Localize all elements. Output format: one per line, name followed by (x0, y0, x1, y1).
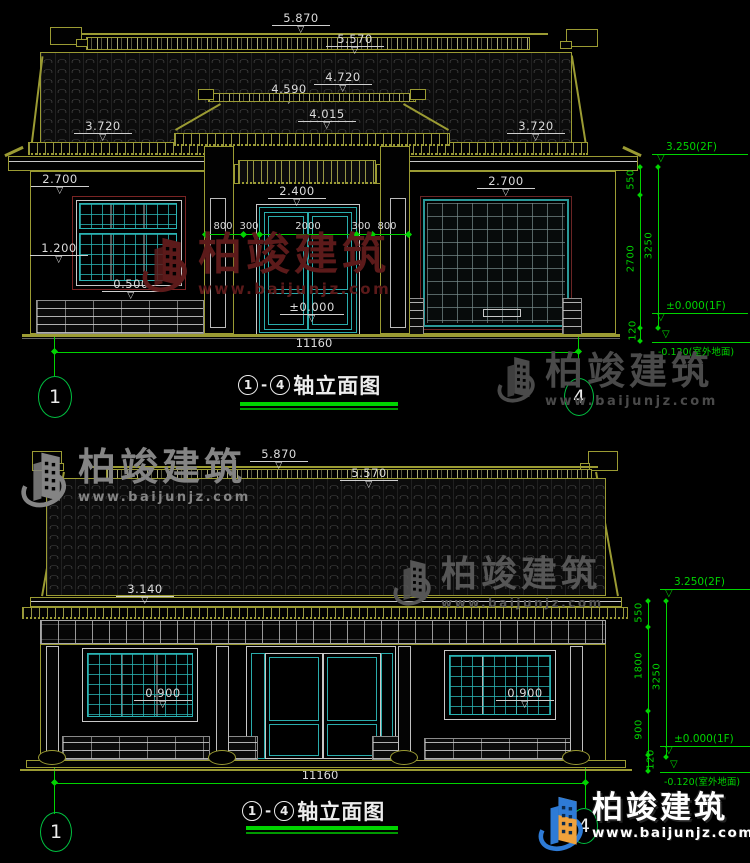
title-underline-2 (240, 408, 398, 410)
dim-4720: 4.720▽ (314, 71, 372, 94)
dim-marker (582, 779, 589, 786)
level-1f: ±0.000(1F)▽ (660, 733, 750, 747)
dim-0500: 0.500▽ (102, 278, 160, 301)
dim-w300-b: 300 (350, 221, 372, 232)
left-window-panes (79, 233, 177, 281)
total-dim-ext-left (54, 336, 55, 376)
door-panel (327, 724, 377, 756)
dim-4015: 4.015▽ (298, 108, 356, 131)
ground-line (20, 769, 632, 771)
vdim-120: 120 (646, 742, 657, 778)
brand-logo-name: 柏竣建筑 (592, 792, 750, 825)
canopy-bracket-right (376, 164, 381, 184)
dim-w2000: 2000 (288, 221, 328, 232)
column-base-3 (390, 750, 418, 765)
dim-w300-a: 300 (238, 221, 260, 232)
vdim-550: 550 (634, 595, 645, 631)
dim-tick (637, 192, 643, 198)
dim-zero: ±0.000▽ (280, 301, 344, 324)
cad-canvas: 5.870▽ 5.570▽ 4.720▽ 4.590▽ 4.015▽ 3.720… (0, 0, 750, 863)
pilaster-panel-right (390, 198, 406, 328)
watermark: 柏竣建筑 www.baijunjz.com (497, 352, 718, 409)
level-outdoor-tri: ▽ (670, 759, 678, 770)
level-outdoor-line (652, 342, 750, 343)
dim-5870: 5.870▽ (250, 448, 308, 471)
column-4 (570, 646, 583, 762)
gable-edge-right (571, 55, 587, 146)
dim-marker (575, 348, 582, 355)
vdim-900: 900 (634, 712, 645, 748)
level-outdoor-line (660, 772, 750, 773)
vdim-550: 550 (626, 162, 637, 198)
dim-2700-left: 2.700▽ (31, 173, 89, 196)
pilaster-panel-left (210, 198, 226, 328)
brand-logo: 柏竣建筑 www.baijunjz.com (538, 792, 750, 854)
total-dim-ext-right (578, 336, 579, 380)
garage-door (420, 196, 572, 330)
plinth (26, 760, 626, 768)
column-base-2 (208, 750, 236, 765)
left-window (72, 196, 186, 290)
dim-1200: 1.200▽ (30, 242, 88, 265)
dim-marker (51, 348, 58, 355)
axis-bubble-1: 1 (40, 812, 72, 852)
frieze-band (40, 620, 606, 644)
ridge-ornament-right-step (560, 41, 572, 49)
left-window (82, 648, 198, 722)
door-leaf-left (265, 653, 323, 759)
garage-door-handle (483, 309, 521, 317)
vdim-1800: 1800 (634, 648, 645, 684)
width-dim-line (205, 234, 410, 235)
title-underline-1 (246, 826, 398, 830)
garage-pier-right (562, 298, 582, 336)
door-glass (269, 657, 319, 721)
axis-bubble-4: 4 (564, 378, 594, 416)
door-glass (327, 657, 377, 721)
vdim-120: 120 (628, 313, 639, 349)
column-2 (216, 646, 229, 762)
vdim-2700: 2700 (626, 241, 637, 277)
door-canopy (238, 160, 376, 184)
level-outdoor: -0.120(室外地面) (664, 774, 740, 788)
watermark-logo-icon (497, 352, 539, 406)
level-outdoor: -0.120(室外地面) (658, 344, 734, 358)
total-dim-line (55, 783, 586, 784)
dim-tick (645, 598, 651, 604)
brick-wainscot (36, 300, 204, 334)
dim-5570: 5.570▽ (326, 33, 384, 56)
gate-ornament-right (410, 89, 426, 100)
dim-tick (663, 598, 669, 604)
total-dim-ext-left (54, 768, 55, 814)
dim-total: 11160 (292, 336, 336, 350)
level-2f: 3.250(2F)▽ (652, 141, 748, 155)
column-1 (46, 646, 59, 762)
dim-5570: 5.570▽ (340, 467, 398, 490)
dim-tick (637, 164, 643, 170)
ridge-ornament-left-step (54, 463, 64, 471)
title-underline-1 (240, 402, 398, 406)
level-1f: ±0.000(1F)▽ (652, 300, 748, 314)
level-2f: 3.250(2F)▽ (660, 576, 750, 590)
garage-door-frame (423, 199, 569, 327)
gate-ridge (208, 93, 416, 102)
dim-2700-right: 2.700▽ (477, 175, 535, 198)
brick-wainscot-right (424, 738, 572, 760)
dim-tick (645, 624, 651, 630)
door-panel (269, 724, 319, 756)
dim-2400: 2.400▽ (268, 185, 326, 208)
dim-3720-left: 3.720▽ (74, 120, 132, 143)
dim-marker (51, 779, 58, 786)
drawing-title-bottom: 1-4轴立面图 (242, 796, 385, 826)
level-outdoor-tri: ▽ (662, 329, 670, 340)
title-underline-2 (246, 832, 398, 834)
brand-logo-icon (538, 792, 588, 854)
gate-ornament-left (198, 89, 214, 100)
gate-eave (174, 133, 450, 146)
ridge-ornament-left-step (76, 39, 88, 47)
vdim-3250: 3250 (652, 659, 663, 695)
dim-3140: 3.140▽ (116, 583, 174, 606)
brand-logo-url: www.baijunjz.com (592, 825, 750, 841)
dim-0900-left: 0.900▽ (134, 687, 192, 710)
vdim-3250: 3250 (644, 228, 655, 264)
column-base-4 (562, 750, 590, 765)
dim-w800-a: 800 (208, 221, 238, 232)
column-3 (398, 646, 411, 762)
ridge-band (86, 37, 530, 50)
canopy-bracket-left (234, 164, 239, 184)
roof-tiles (46, 478, 606, 596)
column-base-1 (38, 750, 66, 765)
dim-tick (655, 325, 661, 331)
dim-3720-right: 3.720▽ (507, 120, 565, 143)
ground-line (22, 334, 620, 337)
dim-tick (645, 708, 651, 714)
brick-wainscot-left (62, 736, 210, 760)
left-window-transom (79, 203, 177, 229)
total-dim-line (55, 352, 579, 353)
dim-5870: 5.870▽ (272, 12, 330, 35)
dim-tick (655, 164, 661, 170)
drawing-title-top: 1-4轴立面图 (238, 370, 381, 400)
lower-eave-band (22, 607, 628, 619)
dim-w800-b: 800 (372, 221, 402, 232)
garage-door-slats (427, 203, 565, 323)
ridge-ornament-right (588, 451, 618, 471)
dim-0900-right: 0.900▽ (496, 687, 554, 710)
axis-bubble-1: 1 (38, 376, 72, 418)
brand-logo-text: 柏竣建筑 www.baijunjz.com (592, 792, 750, 841)
